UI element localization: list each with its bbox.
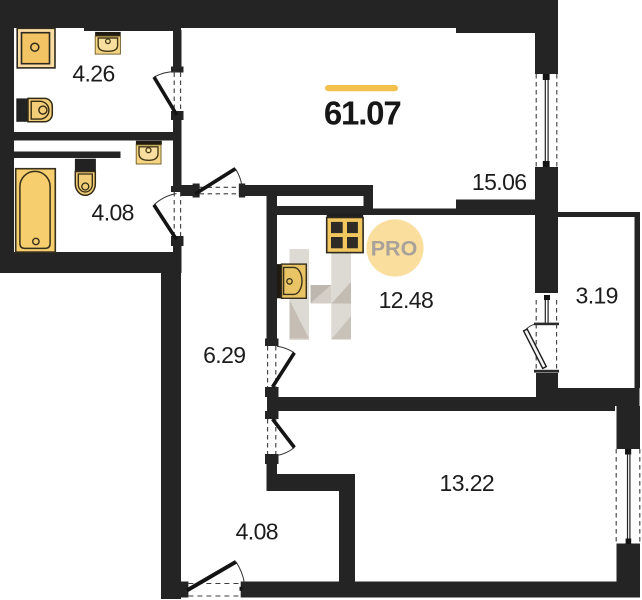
svg-text:4.26: 4.26	[72, 61, 114, 87]
svg-text:PRO: PRO	[371, 237, 418, 261]
svg-text:4.08: 4.08	[236, 519, 278, 545]
svg-text:61.07: 61.07	[324, 95, 401, 132]
svg-text:3.19: 3.19	[576, 282, 618, 308]
svg-text:13.22: 13.22	[440, 470, 495, 496]
svg-text:15.06: 15.06	[472, 169, 527, 195]
svg-text:12.48: 12.48	[379, 287, 434, 313]
svg-text:6.29: 6.29	[203, 342, 245, 368]
svg-text:4.08: 4.08	[92, 200, 134, 226]
